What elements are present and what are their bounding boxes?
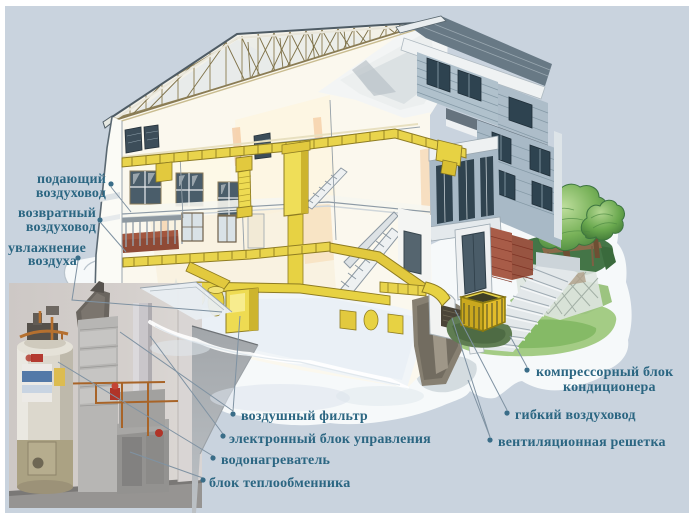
svg-text:воздуховод: воздуховод <box>26 220 96 235</box>
svg-text:подающий: подающий <box>37 172 106 187</box>
svg-text:воздуховод: воздуховод <box>36 186 106 201</box>
svg-text:компрессорный блок: компрессорный блок <box>536 365 674 380</box>
svg-text:вентиляционная решетка: вентиляционная решетка <box>498 435 666 450</box>
svg-text:водонагреватель: водонагреватель <box>221 453 331 468</box>
svg-text:блок теплообменника: блок теплообменника <box>209 476 350 491</box>
svg-text:кондиционера: кондиционера <box>563 380 656 395</box>
svg-text:электронный блок управления: электронный блок управления <box>229 432 431 447</box>
svg-text:воздуха: воздуха <box>28 254 77 269</box>
svg-text:возвратный: возвратный <box>18 206 96 221</box>
svg-text:воздушный фильтр: воздушный фильтр <box>241 409 368 424</box>
svg-text:гибкий воздуховод: гибкий воздуховод <box>515 408 636 423</box>
